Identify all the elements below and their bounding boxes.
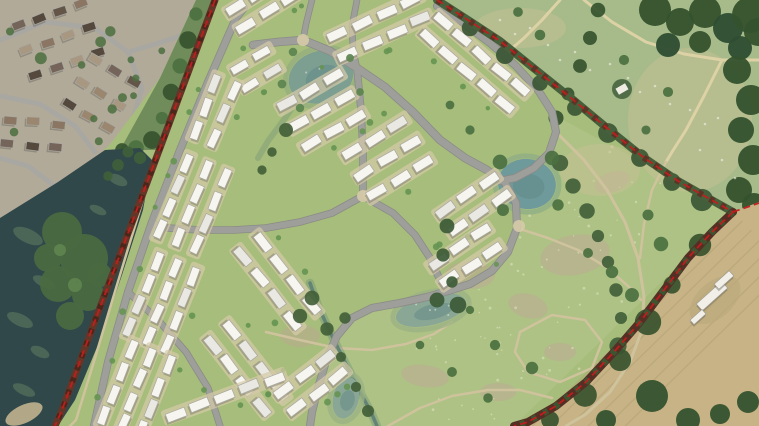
tree <box>493 155 508 170</box>
tree <box>262 89 267 94</box>
meadow-fleck <box>574 209 576 211</box>
tree <box>446 276 457 287</box>
tree <box>447 367 457 377</box>
tree <box>292 8 298 14</box>
tree <box>299 3 304 8</box>
house-block <box>50 120 66 131</box>
meadow-fleck <box>571 347 574 350</box>
tree <box>137 266 143 272</box>
tree <box>356 88 364 96</box>
field-speckle <box>547 44 550 47</box>
tree <box>552 199 563 210</box>
tree <box>497 204 509 216</box>
meadow-fleck <box>558 249 560 251</box>
tree <box>165 173 170 178</box>
tree <box>565 178 580 193</box>
tree <box>436 248 449 261</box>
tree <box>6 27 14 35</box>
field-speckle <box>639 91 642 94</box>
tree <box>433 243 440 250</box>
tree <box>384 48 390 54</box>
tree <box>319 65 324 70</box>
meadow-fleck <box>568 201 571 204</box>
meadow-fleck <box>493 418 495 420</box>
tree <box>360 128 366 134</box>
tree <box>118 93 127 102</box>
tree <box>654 237 668 251</box>
tree <box>10 128 19 137</box>
tree <box>119 308 126 315</box>
tree <box>95 137 103 145</box>
meadow-fleck <box>514 306 517 309</box>
field-speckle <box>609 63 612 66</box>
tree <box>305 291 320 306</box>
field-speckle <box>704 123 707 126</box>
pond-speckle <box>448 305 450 307</box>
meadow-fleck <box>491 414 493 416</box>
tree <box>320 322 333 335</box>
tree <box>460 84 466 90</box>
tree <box>103 171 112 180</box>
pond-speckle <box>447 314 449 316</box>
tree <box>278 80 287 89</box>
tree <box>289 48 298 57</box>
map-canvas[interactable] <box>0 0 759 426</box>
meadow-fleck <box>501 349 503 351</box>
house-block <box>25 117 40 127</box>
tree <box>490 340 500 350</box>
house-roof <box>52 120 66 129</box>
meadow-fleck <box>517 270 520 273</box>
tree <box>257 165 266 174</box>
tree <box>153 205 158 210</box>
house-roof <box>0 139 14 148</box>
meadow-fleck <box>496 379 499 382</box>
field-speckle <box>574 51 577 54</box>
house-block <box>0 138 14 149</box>
field-speckle <box>654 85 657 88</box>
tree <box>170 158 177 165</box>
tree <box>272 320 279 327</box>
tree <box>494 262 499 267</box>
tree <box>293 309 307 323</box>
house-roof <box>3 116 17 125</box>
meadow-fleck <box>489 307 492 310</box>
tree <box>381 111 387 117</box>
tree <box>336 352 346 362</box>
meadow-fleck <box>557 321 559 323</box>
tree <box>642 209 653 220</box>
meadow-fleck <box>579 304 581 306</box>
pond-speckle <box>305 71 307 73</box>
masterplan-aerial-view[interactable] <box>0 0 759 426</box>
tree <box>267 147 276 156</box>
tree <box>728 117 754 143</box>
tree <box>351 382 361 392</box>
tree <box>609 283 622 296</box>
meadow-fleck <box>436 349 438 351</box>
tree <box>431 58 437 64</box>
meadow-fleck <box>638 233 640 235</box>
tree <box>78 61 86 69</box>
meadow-fleck <box>461 404 463 406</box>
field-speckle <box>689 109 692 112</box>
meadow-fleck <box>519 236 522 239</box>
tree <box>95 36 106 47</box>
tree <box>579 203 595 219</box>
tree <box>573 59 587 73</box>
house-block <box>1 116 17 127</box>
meadow-fleck <box>549 347 551 349</box>
tree <box>450 297 467 314</box>
field-speckle <box>514 33 517 36</box>
meadow-fleck <box>635 201 637 203</box>
meadow-fleck <box>430 338 432 340</box>
tree <box>189 7 202 20</box>
tree <box>636 380 668 412</box>
tree <box>189 312 195 318</box>
field-speckle <box>559 59 562 62</box>
tree <box>430 293 445 308</box>
field-speckle <box>589 69 592 72</box>
meadow-fleck <box>546 259 548 261</box>
tree <box>132 75 139 82</box>
tree <box>186 109 192 115</box>
tree <box>128 56 135 63</box>
meadow-fleck <box>578 367 581 370</box>
tree <box>279 123 293 137</box>
tree <box>238 402 244 408</box>
tree <box>265 391 271 397</box>
tree <box>56 302 84 330</box>
tree <box>339 312 350 323</box>
tree <box>105 26 115 36</box>
tree <box>465 125 474 134</box>
tree <box>466 306 474 314</box>
tree <box>656 33 680 57</box>
meadow-fleck <box>496 327 498 329</box>
meadow-fleck <box>416 348 418 350</box>
meadow-fleck <box>445 361 447 363</box>
tree <box>324 399 331 406</box>
meadow-fleck <box>472 408 474 410</box>
meadow-fleck <box>542 357 545 360</box>
tree <box>108 104 117 113</box>
meadow-fleck <box>480 336 482 338</box>
tree <box>344 384 350 390</box>
field-speckle <box>717 117 720 120</box>
tree <box>486 106 490 110</box>
tree <box>591 3 606 18</box>
tree <box>177 367 182 372</box>
tree <box>545 151 559 165</box>
tree <box>615 312 627 324</box>
meadow-fleck <box>600 249 602 251</box>
tree <box>334 391 340 397</box>
tree <box>483 393 493 403</box>
tree <box>440 219 455 234</box>
tree <box>663 87 673 97</box>
tree <box>689 31 711 53</box>
tree <box>367 119 374 126</box>
meadow-fleck <box>573 235 574 236</box>
tree <box>35 52 47 64</box>
tree <box>276 235 281 240</box>
field-speckle <box>669 103 672 106</box>
meadow-fleck <box>454 339 456 341</box>
meadow-fleck <box>610 234 612 236</box>
tree <box>68 278 82 292</box>
pond-speckle <box>415 304 417 306</box>
meadow-fleck <box>493 398 494 399</box>
meadow-fleck <box>479 312 481 314</box>
tree <box>90 115 97 122</box>
tree <box>346 54 354 62</box>
field-speckle <box>721 159 724 162</box>
tree <box>122 146 133 157</box>
meadow-fleck <box>548 369 551 372</box>
tree <box>723 56 751 84</box>
meadow-fleck <box>583 287 586 290</box>
meadow-fleck <box>596 292 599 295</box>
tree <box>405 189 411 195</box>
tree <box>302 269 308 275</box>
meadow-fleck <box>448 418 450 420</box>
pond-speckle <box>434 309 436 311</box>
meadow-fleck <box>520 377 522 379</box>
tree <box>513 7 523 17</box>
tree <box>201 387 207 393</box>
tree <box>54 244 66 256</box>
tree <box>296 104 304 112</box>
meadow-fleck <box>616 220 617 221</box>
junction-pad <box>513 220 525 232</box>
meadow-fleck <box>510 334 512 336</box>
tree <box>196 87 201 92</box>
junction-pad <box>297 34 309 46</box>
tree <box>158 47 165 54</box>
tree <box>246 323 251 328</box>
tree <box>362 405 374 417</box>
meadow-fleck <box>568 306 570 308</box>
meadow-fleck <box>541 266 543 268</box>
meadow-fleck <box>522 273 524 275</box>
meadow-fleck <box>620 300 623 303</box>
house-block <box>47 142 63 153</box>
wildflower-patch <box>544 343 576 361</box>
tree <box>737 391 759 413</box>
tree <box>134 152 146 164</box>
tree <box>94 394 101 401</box>
tree <box>130 92 137 99</box>
tree <box>710 404 730 424</box>
house-roof <box>26 141 40 151</box>
meadow-fleck <box>546 374 548 376</box>
tree <box>583 31 597 45</box>
field-speckle <box>627 77 630 80</box>
field-speckle <box>699 149 702 152</box>
tree <box>592 230 604 242</box>
meadow-fleck <box>478 289 480 291</box>
meadow-fleck <box>499 327 501 329</box>
meadow-fleck <box>578 216 580 218</box>
meadow-fleck <box>496 353 498 355</box>
tree <box>234 114 240 120</box>
field-speckle <box>734 177 737 180</box>
meadow-fleck <box>484 337 486 339</box>
house-roof <box>48 142 62 151</box>
tree <box>416 341 425 350</box>
meadow-fleck <box>587 224 590 227</box>
meadow-fleck <box>484 298 486 300</box>
tree <box>109 358 115 364</box>
tree <box>446 101 455 110</box>
tree <box>331 145 337 151</box>
tree <box>240 45 246 51</box>
meadow-fleck <box>510 263 513 266</box>
field-speckle <box>529 27 532 30</box>
tree <box>606 266 618 278</box>
pond-speckle <box>429 309 431 311</box>
meadow-fleck <box>435 345 437 347</box>
tree <box>112 159 124 171</box>
meadow-fleck <box>432 408 435 411</box>
tree <box>526 362 538 374</box>
house-roof <box>26 117 39 126</box>
field-speckle <box>499 19 502 22</box>
tree <box>619 55 629 65</box>
tree <box>625 288 639 302</box>
meadow-fleck <box>522 370 524 372</box>
tree <box>583 248 593 258</box>
tree <box>535 30 546 41</box>
tree <box>641 125 650 134</box>
